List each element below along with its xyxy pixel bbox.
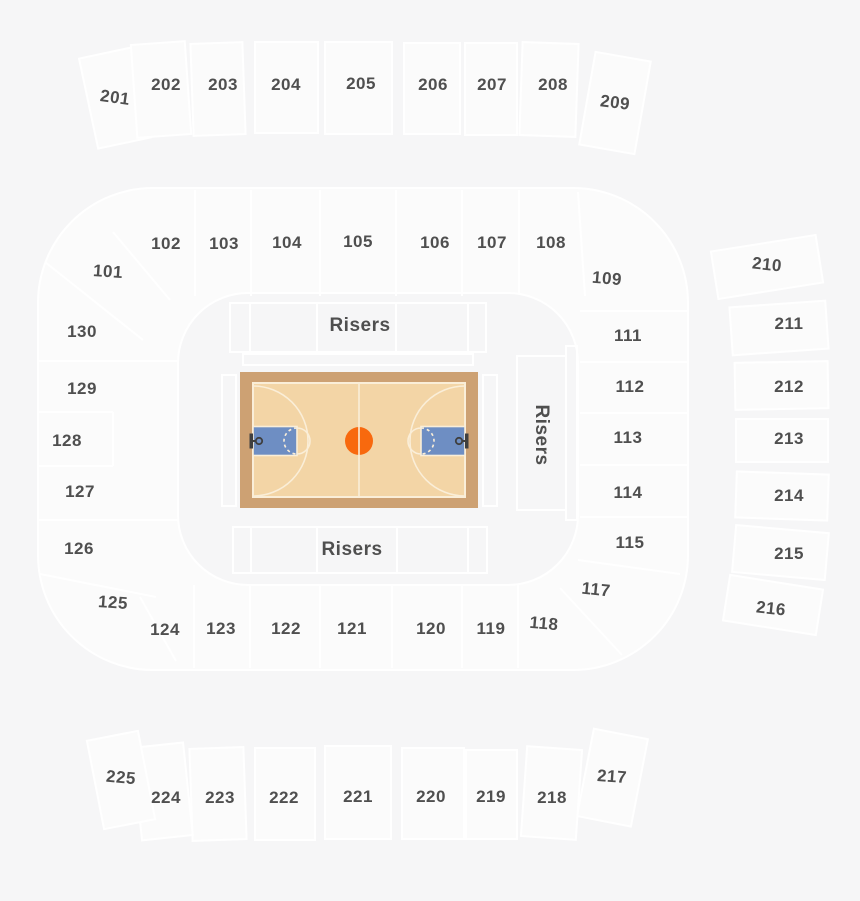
section-label-218[interactable]: 218 — [537, 788, 567, 808]
section-label-225[interactable]: 225 — [105, 767, 137, 790]
section-label-219[interactable]: 219 — [476, 787, 506, 807]
section-label-212[interactable]: 212 — [774, 377, 804, 397]
section-label-224[interactable]: 224 — [151, 788, 181, 808]
section-label-114[interactable]: 114 — [614, 483, 643, 503]
section-label-205[interactable]: 205 — [346, 74, 376, 94]
section-label-203[interactable]: 203 — [208, 75, 238, 95]
section-label-122[interactable]: 122 — [271, 619, 301, 639]
section-label-213[interactable]: 213 — [774, 429, 804, 449]
section-label-121[interactable]: 121 — [337, 619, 367, 639]
section-label-112[interactable]: 112 — [616, 377, 645, 397]
section-label-106[interactable]: 106 — [420, 233, 450, 253]
section-label-104[interactable]: 104 — [272, 233, 302, 253]
section-label-206[interactable]: 206 — [418, 75, 448, 95]
courtside-strip-top — [243, 354, 473, 365]
seating-chart: Risers Risers Risers 1011021031041051061… — [0, 0, 860, 901]
section-label-109[interactable]: 109 — [591, 268, 623, 291]
section-label-217[interactable]: 217 — [596, 766, 627, 788]
outer-sections-top — [79, 41, 651, 154]
section-label-207[interactable]: 207 — [477, 75, 507, 95]
aisle-band-right — [566, 346, 577, 520]
risers-label-top[interactable]: Risers — [329, 315, 390, 337]
section-label-201[interactable]: 201 — [99, 86, 131, 110]
courtside-strip-left — [222, 375, 236, 506]
section-label-117[interactable]: 117 — [581, 579, 612, 602]
section-label-123[interactable]: 123 — [206, 619, 236, 639]
section-label-208[interactable]: 208 — [538, 75, 568, 95]
section-label-113[interactable]: 113 — [614, 428, 643, 448]
section-label-216[interactable]: 216 — [755, 597, 787, 620]
section-label-209[interactable]: 209 — [599, 91, 631, 114]
section-label-211[interactable]: 211 — [775, 314, 804, 334]
section-label-214[interactable]: 214 — [774, 486, 804, 506]
section-label-108[interactable]: 108 — [536, 233, 566, 253]
section-label-130[interactable]: 130 — [67, 322, 97, 342]
basketball-court — [240, 372, 478, 508]
section-label-103[interactable]: 103 — [209, 234, 239, 254]
section-label-107[interactable]: 107 — [477, 233, 507, 253]
section-label-210[interactable]: 210 — [751, 253, 783, 276]
section-label-124[interactable]: 124 — [150, 620, 180, 640]
section-label-102[interactable]: 102 — [151, 234, 181, 254]
section-label-126[interactable]: 126 — [64, 539, 94, 559]
section-label-204[interactable]: 204 — [271, 75, 301, 95]
section-label-115[interactable]: 115 — [616, 533, 645, 553]
outer-sections-bottom — [87, 729, 648, 841]
section-label-221[interactable]: 221 — [343, 787, 373, 807]
section-label-202[interactable]: 202 — [151, 75, 181, 95]
risers-label-bottom[interactable]: Risers — [321, 539, 382, 561]
arena-map — [0, 0, 860, 901]
section-label-101[interactable]: 101 — [92, 261, 123, 283]
key-left — [253, 427, 297, 456]
section-label-128[interactable]: 128 — [52, 431, 82, 451]
section-label-118[interactable]: 118 — [529, 613, 560, 635]
courtside-strip-right — [483, 375, 497, 506]
section-label-215[interactable]: 215 — [774, 544, 804, 564]
key-right — [421, 427, 465, 456]
section-label-111[interactable]: 111 — [614, 326, 642, 346]
section-label-125[interactable]: 125 — [97, 592, 128, 614]
outer-sections-right — [711, 235, 829, 635]
section-label-220[interactable]: 220 — [416, 787, 446, 807]
section-label-105[interactable]: 105 — [343, 232, 373, 252]
section-label-223[interactable]: 223 — [205, 788, 235, 808]
section-label-119[interactable]: 119 — [477, 619, 506, 639]
section-label-129[interactable]: 129 — [67, 379, 97, 399]
section-label-120[interactable]: 120 — [416, 619, 446, 639]
risers-label-right[interactable]: Risers — [530, 404, 552, 465]
section-label-127[interactable]: 127 — [65, 482, 95, 502]
section-label-222[interactable]: 222 — [269, 788, 299, 808]
